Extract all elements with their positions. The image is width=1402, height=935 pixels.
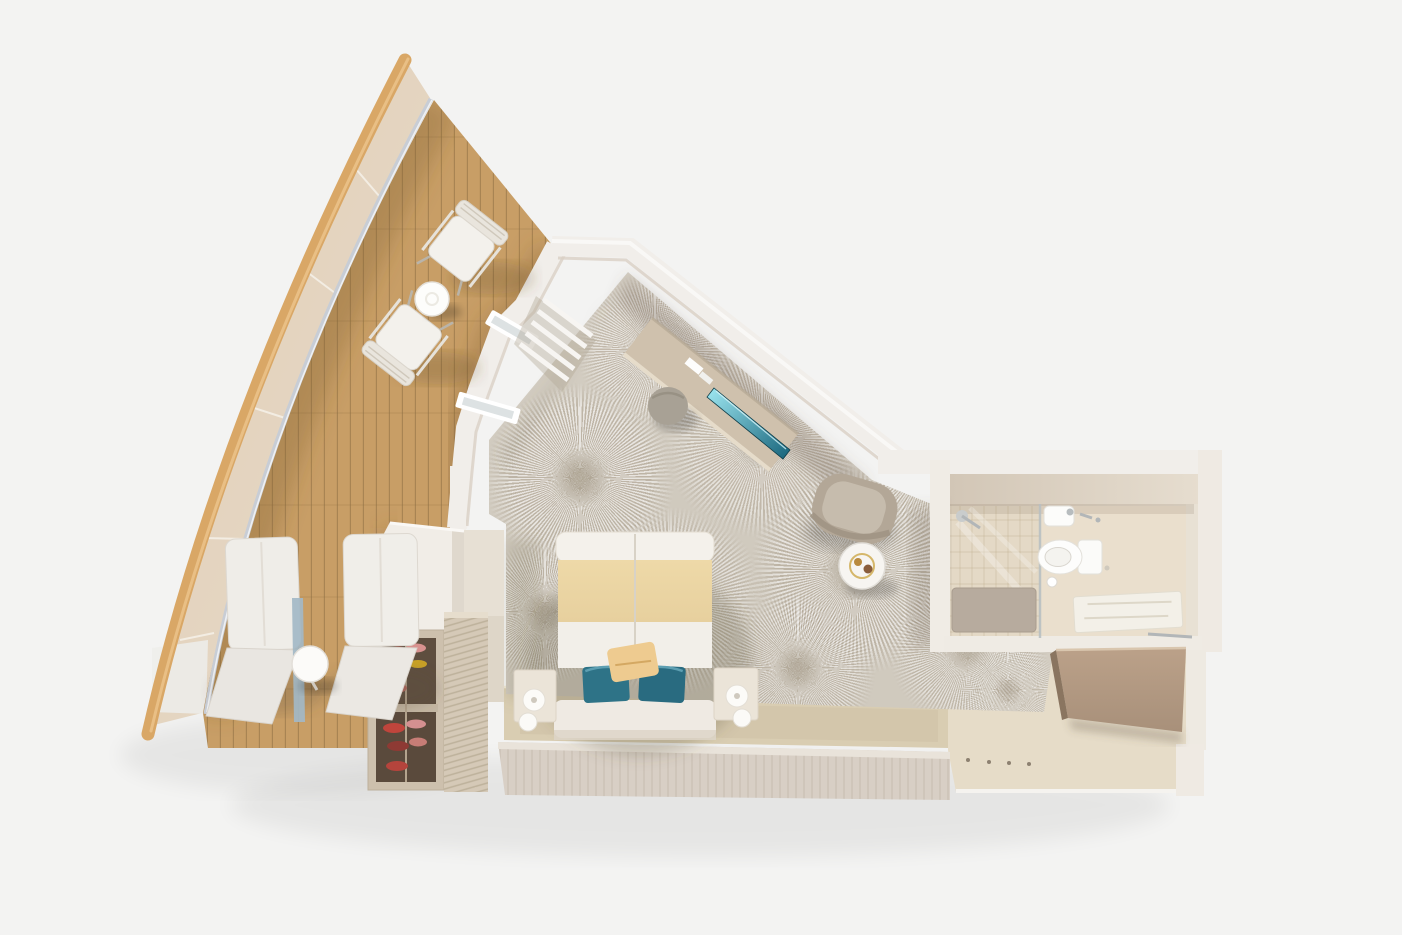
bathroom-left-wall [930, 460, 950, 652]
lounger-drinks-table [292, 646, 338, 694]
nightstand-left [514, 670, 556, 731]
faucet-icon [1067, 509, 1074, 516]
armchair [804, 468, 904, 551]
floor-plan-render [0, 0, 1402, 935]
washbasin [1044, 506, 1101, 526]
slat-partition [444, 612, 488, 792]
toilet [1038, 540, 1102, 587]
bath-mat [1073, 566, 1192, 638]
bed [528, 532, 752, 756]
bed-headboard-edge [554, 730, 716, 740]
shower-mat [952, 588, 1036, 632]
nightstand-right [714, 668, 758, 727]
bathroom-top-wall [878, 450, 1222, 474]
bistro-table [415, 282, 462, 320]
right-outer-wall [1198, 450, 1222, 652]
side-table [839, 543, 898, 598]
furniture-layer [0, 0, 1402, 935]
left-lower-wall [450, 466, 466, 532]
sun-loungers [206, 533, 438, 724]
corridor-wardrobe [1050, 648, 1186, 744]
shower [952, 504, 1040, 638]
corridor-right-wall [1186, 650, 1206, 750]
toilet-paper-icon [1047, 577, 1057, 587]
floor-fitting-dots [966, 758, 1031, 766]
corridor-corner-wall [1176, 744, 1204, 796]
